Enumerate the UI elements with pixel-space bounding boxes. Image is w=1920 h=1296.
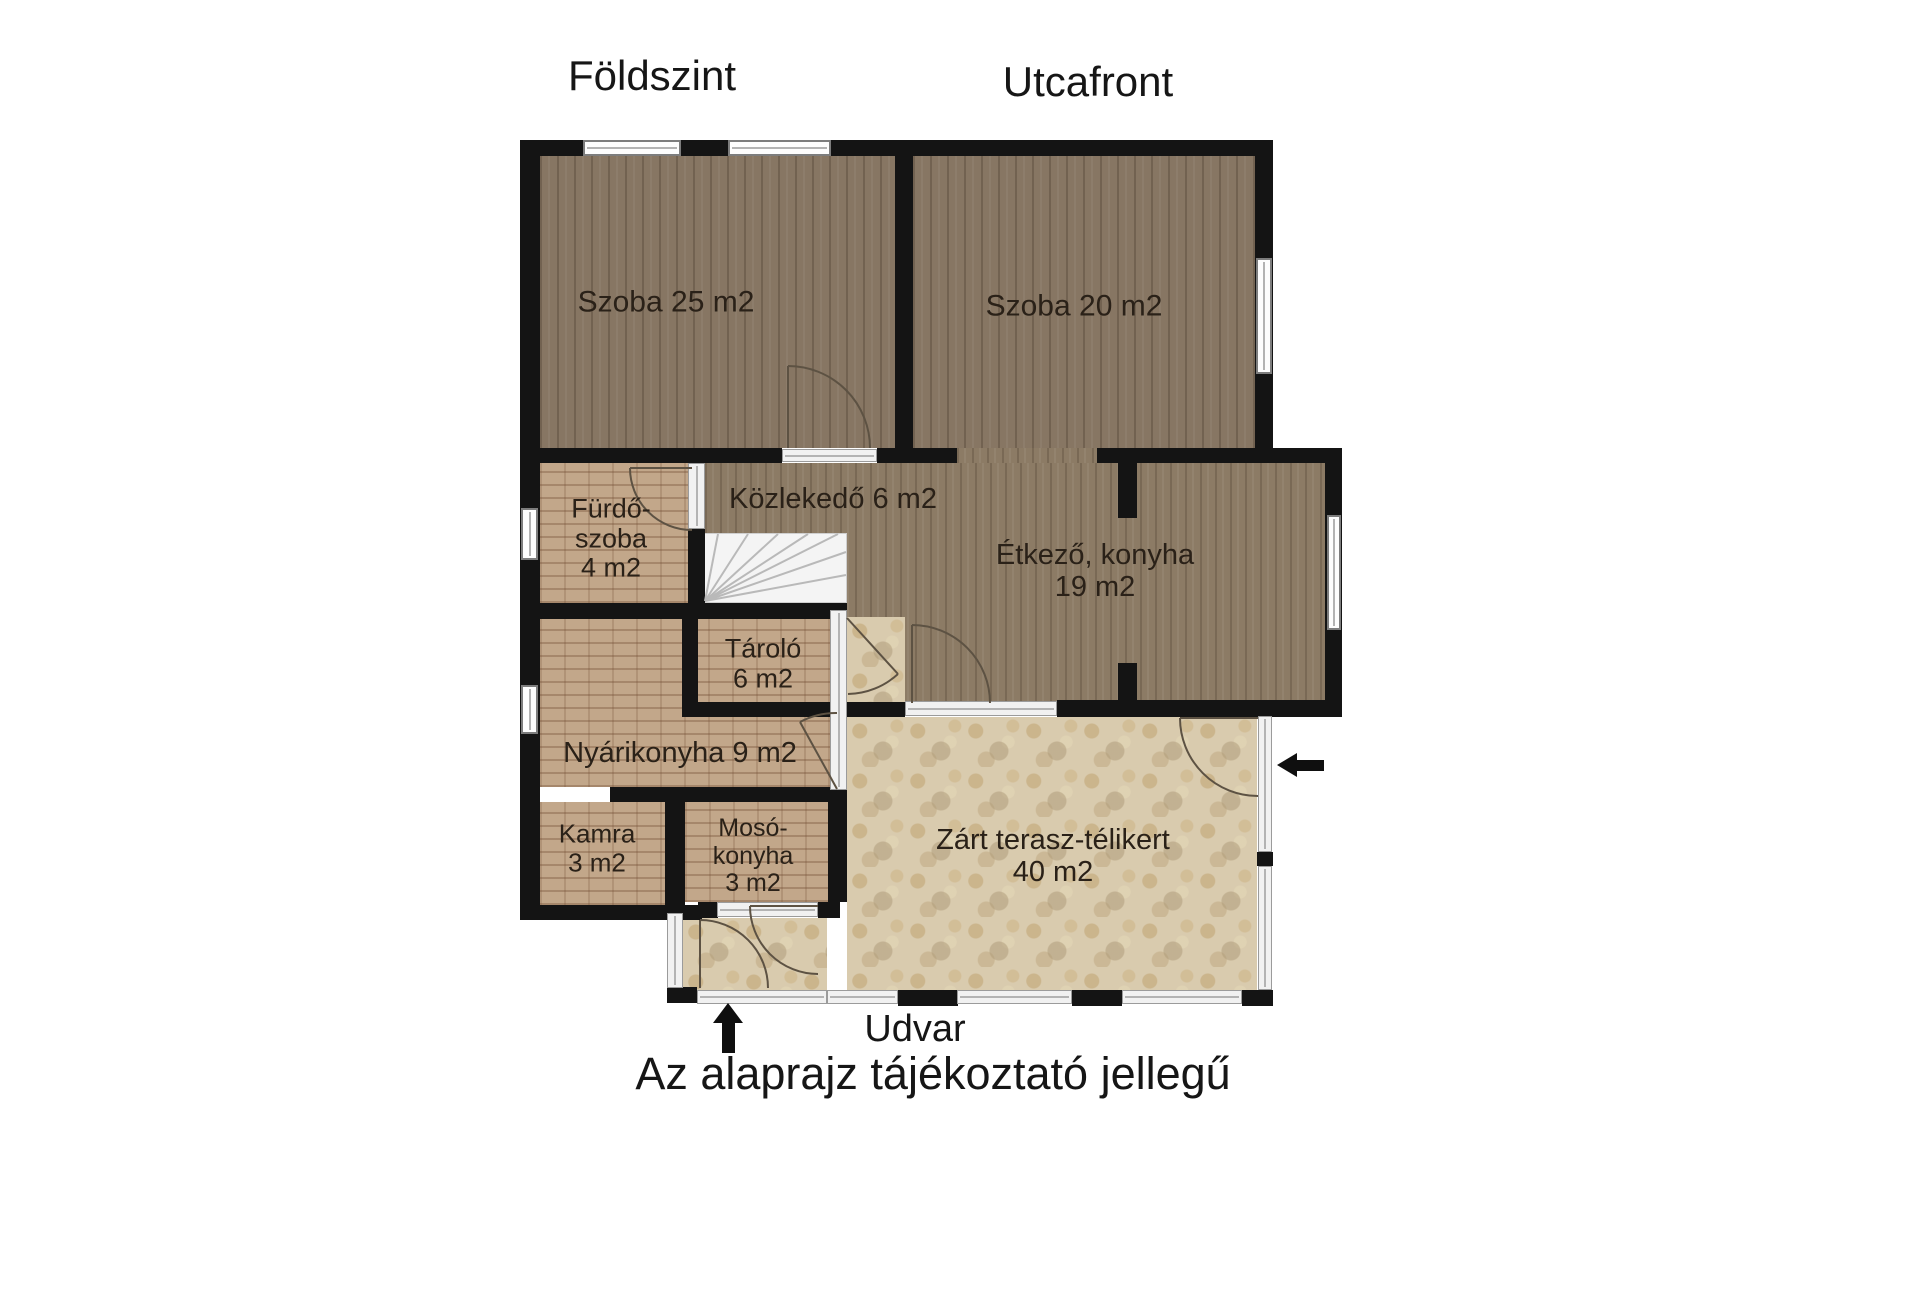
wall	[895, 156, 913, 448]
wall	[1263, 448, 1342, 463]
room-label-line: 3 m2	[559, 848, 636, 877]
arrow-head-icon	[713, 1003, 743, 1023]
room-label-line: 6 m2	[725, 664, 802, 694]
room-label-kamra: Kamra 3 m2	[559, 819, 636, 876]
wall	[818, 902, 840, 918]
wall	[665, 802, 685, 905]
room-label-line: Fürdő-	[571, 494, 651, 524]
wall	[610, 787, 837, 802]
wall	[688, 528, 705, 605]
room-label-szoba20: Szoba 20 m2	[986, 290, 1163, 323]
room-label-line: Tároló	[725, 634, 802, 664]
title-ground-floor: Földszint	[568, 52, 736, 100]
glazed-wall	[827, 990, 898, 1004]
room-label-line: 3 m2	[713, 870, 794, 898]
title-street-front: Utcafront	[1003, 58, 1173, 106]
room-label-furdoszoba: Fürdő- szoba 4 m2	[571, 494, 651, 583]
yard-label: Udvar	[864, 1008, 965, 1051]
window	[521, 508, 538, 560]
room-label-line: 40 m2	[936, 857, 1170, 889]
wall	[698, 902, 718, 918]
window	[583, 140, 681, 156]
wall	[1057, 700, 1342, 717]
glazed-wall	[1258, 866, 1272, 990]
wall	[1097, 448, 1263, 463]
room-label-line: Zárt terasz-télikert	[936, 825, 1170, 857]
room-label-line: konyha	[713, 842, 794, 870]
room-label-line: 19 m2	[996, 572, 1194, 604]
door-threshold	[688, 463, 705, 529]
glazed-door	[905, 701, 1057, 716]
disclaimer-text: Az alaprajz tájékoztató jellegű	[635, 1048, 1230, 1100]
entrance-arrow-up	[713, 1003, 744, 1053]
room-label-line: Mosó-	[713, 815, 794, 843]
wall	[1257, 852, 1273, 866]
glazed-door	[830, 610, 847, 790]
arrow-shaft	[1296, 760, 1324, 771]
wall	[877, 448, 957, 463]
room-label-nyarikonyha: Nyárikonyha 9 m2	[563, 738, 797, 770]
wall	[540, 448, 782, 463]
glazed-door	[717, 902, 818, 917]
window	[1256, 258, 1272, 374]
glazed-wall	[1122, 990, 1242, 1004]
glazed-wall	[957, 990, 1072, 1004]
wall	[667, 987, 697, 1003]
wall	[1118, 663, 1137, 700]
glazed-wall	[667, 913, 683, 988]
room-label-mosokonyha: Mosó- konyha 3 m2	[713, 815, 794, 898]
door-threshold	[782, 449, 877, 462]
glazed-wall	[1258, 716, 1272, 852]
window	[521, 685, 538, 734]
room-label-etkezo: Étkező, konyha 19 m2	[996, 540, 1194, 604]
wall	[1242, 990, 1273, 1006]
glazed-wall	[697, 990, 827, 1004]
window	[728, 140, 831, 156]
arrow-head-icon	[1277, 753, 1297, 777]
room-label-tarolo: Tároló 6 m2	[725, 634, 802, 693]
room-floor-opening	[957, 448, 1097, 464]
wall	[1072, 990, 1122, 1006]
room-label-line: Kamra	[559, 819, 636, 848]
wall	[682, 702, 905, 717]
room-label-kozlekedo: Közlekedő 6 m2	[729, 484, 937, 516]
wall	[682, 617, 698, 704]
staircase	[703, 533, 847, 603]
window	[1327, 515, 1341, 630]
room-label-terasz: Zárt terasz-télikert 40 m2	[936, 825, 1170, 889]
porch-floor	[683, 918, 827, 990]
room-label-szoba25: Szoba 25 m2	[578, 286, 755, 319]
wall	[898, 990, 958, 1006]
room-label-line: 4 m2	[571, 554, 651, 584]
room-label-line: szoba	[571, 524, 651, 554]
entrance-arrow-left	[1277, 753, 1325, 778]
room-label-line: Étkező, konyha	[996, 540, 1194, 572]
wall	[828, 790, 847, 902]
floor-plan-page: Földszint Utcafront	[0, 0, 1920, 1296]
wall	[1118, 463, 1137, 518]
